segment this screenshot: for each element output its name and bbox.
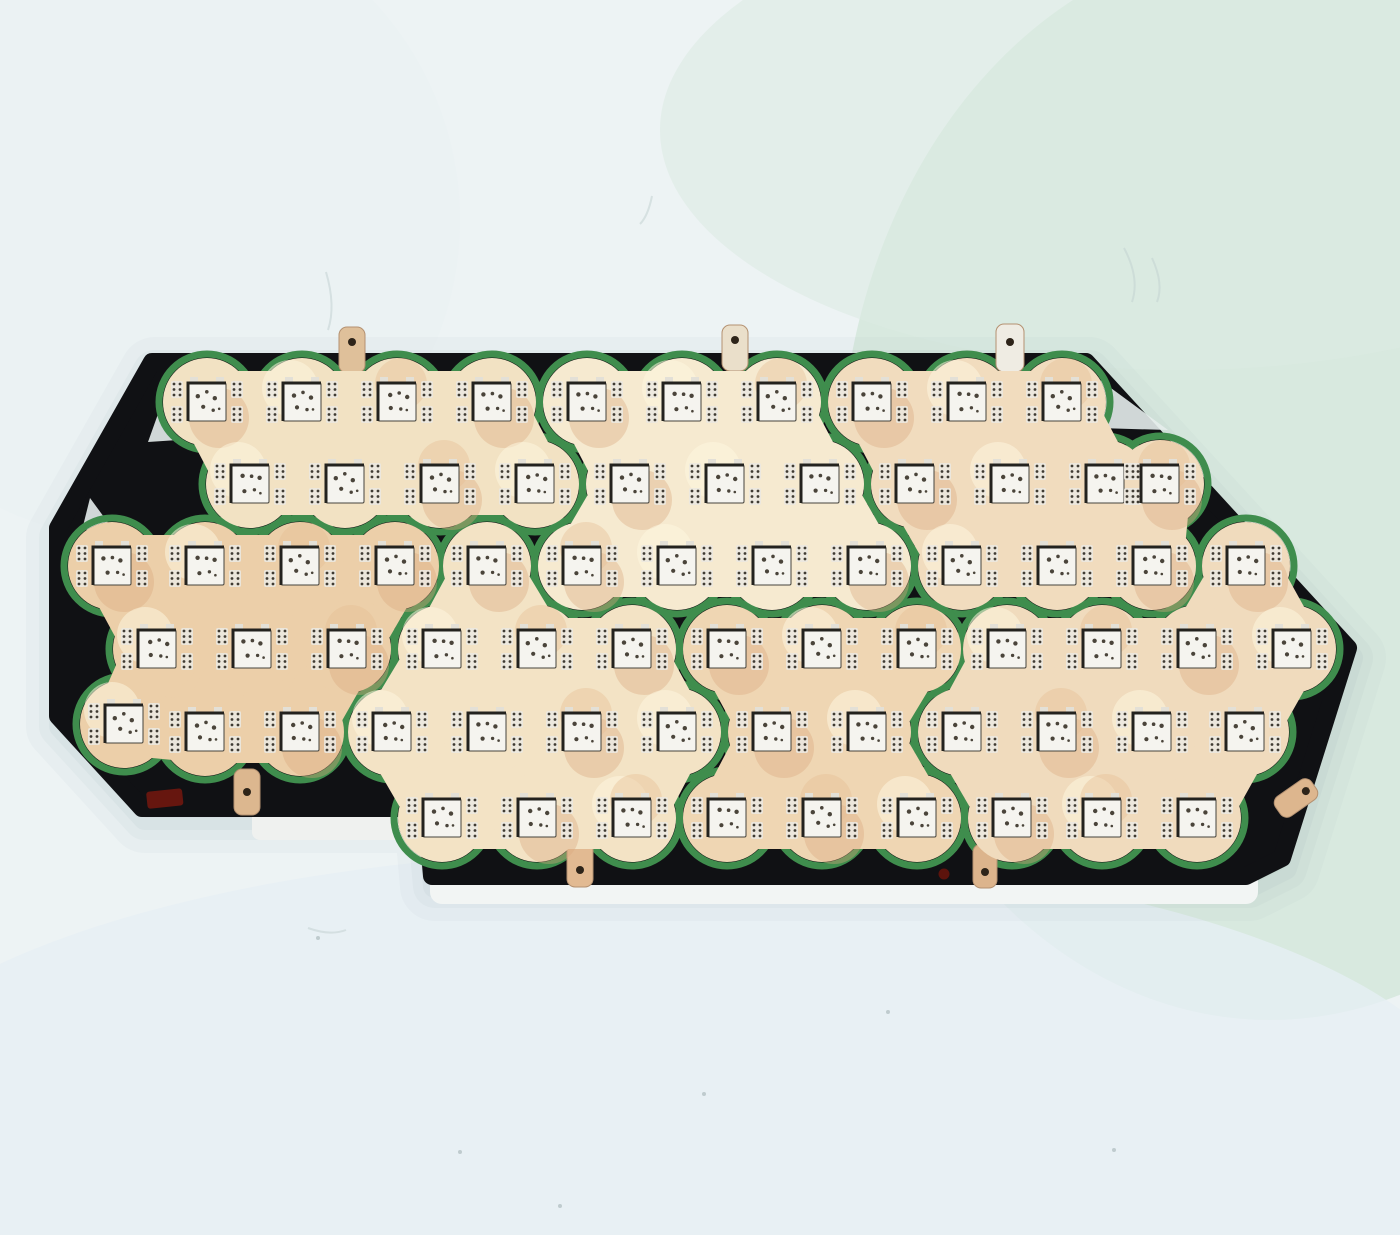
chip-weld-dot (964, 737, 967, 740)
weld-dot (177, 718, 180, 721)
weld-dot (1089, 724, 1092, 727)
weld-dot (406, 495, 409, 498)
weld-dot (993, 419, 996, 422)
weld-dot (649, 718, 652, 721)
weld-dot (332, 713, 335, 716)
weld-dot (1277, 743, 1280, 746)
weld-dot (1186, 490, 1189, 493)
weld-dot (1184, 713, 1187, 716)
chip-weld-dot (688, 738, 691, 741)
weld-dot (714, 413, 717, 416)
weld-dot (216, 476, 219, 479)
weld-dot (418, 724, 421, 727)
weld-dot (233, 413, 236, 416)
weld-dot (1068, 824, 1071, 827)
weld-dot (928, 547, 931, 550)
weld-dot (332, 749, 335, 752)
weld-dot (883, 799, 886, 802)
weld-dot (218, 641, 221, 644)
weld-dot (643, 743, 646, 746)
weld-dot (1264, 630, 1267, 633)
chip-weld-dot (445, 824, 448, 827)
weld-dot (358, 749, 361, 752)
weld-dot (949, 635, 952, 638)
weld-dot (554, 724, 557, 727)
weld-dot (949, 824, 952, 827)
chip-weld-dot (258, 641, 262, 645)
chip-weld-dot (450, 490, 453, 493)
weld-dot (364, 749, 367, 752)
weld-dot (282, 465, 285, 468)
weld-dot (1229, 630, 1232, 633)
weld-dot (278, 660, 281, 663)
weld-dot (1163, 804, 1166, 807)
weld-dot (662, 476, 665, 479)
weld-dot (1134, 804, 1137, 807)
weld-dot (408, 829, 411, 832)
chip-weld-dot (907, 640, 911, 644)
weld-dot (804, 583, 807, 586)
weld-dot (179, 413, 182, 416)
weld-dot (1163, 824, 1166, 827)
weld-dot (272, 552, 275, 555)
weld-dot (138, 577, 141, 580)
chip-body (896, 465, 934, 503)
chip-weld-dot (925, 490, 928, 493)
weld-dot (934, 749, 937, 752)
chip-weld-dot (334, 476, 338, 480)
weld-dot (949, 829, 952, 832)
weld-dot (934, 552, 937, 555)
weld-dot (237, 572, 240, 575)
weld-dot (1271, 713, 1274, 716)
weld-dot (1211, 743, 1214, 746)
weld-dot (408, 635, 411, 638)
weld-dot (798, 713, 801, 716)
weld-dot (759, 804, 762, 807)
weld-dot (408, 810, 411, 813)
weld-dot (563, 835, 566, 838)
weld-dot (749, 413, 752, 416)
weld-dot (1211, 749, 1214, 752)
weld-dot (1229, 666, 1232, 669)
weld-dot (852, 490, 855, 493)
chip-weld-dot (406, 409, 409, 412)
weld-dot (934, 547, 937, 550)
weld-dot (519, 724, 522, 727)
weld-dot (994, 577, 997, 580)
weld-dot (598, 835, 601, 838)
photo-stage (0, 0, 1400, 1235)
weld-dot (567, 495, 570, 498)
weld-dot (598, 666, 601, 669)
weld-dot (519, 718, 522, 721)
weld-dot (231, 749, 234, 752)
weld-dot (803, 383, 806, 386)
chip-weld-dot (253, 488, 256, 491)
weld-dot (602, 470, 605, 473)
weld-dot (744, 577, 747, 580)
weld-dot (274, 408, 277, 411)
weld-dot (1137, 501, 1140, 504)
weld-dot (1264, 666, 1267, 669)
weld-dot (1163, 799, 1166, 802)
chip-weld-dot (1302, 655, 1305, 658)
weld-dot (1278, 572, 1281, 575)
weld-dot (1033, 630, 1036, 633)
chip-weld-dot (591, 407, 594, 410)
chip-weld-dot (262, 656, 265, 659)
chip-weld-dot (907, 809, 911, 813)
weld-dot (794, 824, 797, 827)
chip-weld-dot (443, 490, 446, 493)
weld-dot (1033, 655, 1036, 658)
chip-weld-dot (683, 560, 687, 564)
weld-dot (798, 718, 801, 721)
weld-dot (503, 635, 506, 638)
weld-dot (709, 583, 712, 586)
weld-dot (518, 413, 521, 416)
weld-dot (939, 388, 942, 391)
weld-dot (691, 501, 694, 504)
weld-dot (804, 547, 807, 550)
chip-body (1226, 713, 1264, 751)
weld-dot (608, 583, 611, 586)
weld-dot (561, 495, 564, 498)
weld-dot (554, 547, 557, 550)
surface-speck (458, 1150, 462, 1154)
weld-dot (1077, 465, 1080, 468)
weld-dot (377, 501, 380, 504)
weld-dot (1088, 413, 1091, 416)
weld-dot (563, 630, 566, 633)
weld-dot (1169, 630, 1172, 633)
chip-weld-dot (621, 808, 625, 812)
weld-dot (753, 641, 756, 644)
chip-weld-dot (1013, 641, 1017, 645)
chip-weld-dot (734, 491, 737, 494)
weld-dot (697, 490, 700, 493)
weld-dot (691, 495, 694, 498)
weld-dot (804, 749, 807, 752)
weld-dot (1074, 660, 1077, 663)
weld-dot (619, 388, 622, 391)
chip-weld-dot (1191, 823, 1195, 827)
weld-dot (803, 408, 806, 411)
weld-dot (1184, 558, 1187, 561)
chip-weld-dot (924, 642, 928, 646)
chip-weld-dot (1010, 473, 1014, 477)
chip-body (518, 799, 556, 837)
weld-dot (171, 749, 174, 752)
weld-dot (513, 572, 516, 575)
weld-dot (424, 749, 427, 752)
weld-dot (1278, 552, 1281, 555)
weld-dot (554, 713, 557, 716)
weld-dot (501, 495, 504, 498)
chip-weld-dot (432, 639, 436, 643)
weld-dot (703, 577, 706, 580)
chip-weld-dot (640, 490, 643, 493)
balance-tab (234, 769, 260, 815)
weld-dot (278, 641, 281, 644)
chip-weld-dot (635, 655, 638, 658)
weld-dot (369, 408, 372, 411)
chip-body (663, 383, 701, 421)
chip-weld-dot (129, 731, 132, 734)
weld-dot (414, 630, 417, 633)
weld-dot (282, 490, 285, 493)
chip-body (658, 547, 696, 585)
weld-dot (468, 810, 471, 813)
weld-dot (654, 419, 657, 422)
weld-dot (1128, 804, 1131, 807)
weld-dot (326, 738, 329, 741)
chip-weld-dot (1152, 722, 1156, 726)
weld-dot (839, 558, 842, 561)
weld-dot (792, 470, 795, 473)
weld-dot (224, 635, 227, 638)
weld-dot (786, 490, 789, 493)
weld-dot (838, 388, 841, 391)
weld-dot (379, 641, 382, 644)
weld-dot (509, 630, 512, 633)
weld-dot (1192, 470, 1195, 473)
chip-weld-dot (625, 652, 629, 656)
weld-dot (332, 547, 335, 550)
chip-weld-dot (856, 722, 860, 726)
weld-dot (662, 495, 665, 498)
weld-dot (567, 490, 570, 493)
weld-dot (883, 666, 886, 669)
chip-weld-dot (814, 489, 818, 493)
weld-dot (934, 583, 937, 586)
weld-dot (1088, 408, 1091, 411)
weld-dot (749, 394, 752, 397)
weld-dot (794, 804, 797, 807)
weld-dot (883, 829, 886, 832)
chip-body (801, 465, 839, 503)
balance-tab-hole (348, 338, 356, 346)
weld-dot (1088, 388, 1091, 391)
weld-dot (604, 666, 607, 669)
weld-dot (96, 735, 99, 738)
chip-weld-dot (384, 736, 388, 740)
weld-dot (893, 552, 896, 555)
chip-weld-dot (218, 408, 221, 411)
weld-dot (1229, 641, 1232, 644)
weld-dot (96, 705, 99, 708)
chip-weld-dot (727, 639, 731, 643)
chip-weld-dot (859, 570, 863, 574)
weld-dot (90, 741, 93, 744)
weld-dot (693, 655, 696, 658)
weld-dot (889, 835, 892, 838)
chip-body (753, 547, 791, 585)
weld-dot (1036, 476, 1039, 479)
chip-weld-dot (918, 490, 921, 493)
weld-dot (703, 572, 706, 575)
weld-dot (412, 490, 415, 493)
chip-weld-dot (734, 810, 738, 814)
weld-dot (519, 743, 522, 746)
weld-dot (563, 635, 566, 638)
weld-dot (803, 413, 806, 416)
weld-dot (994, 738, 997, 741)
weld-dot (939, 413, 942, 416)
weld-dot (1029, 547, 1032, 550)
weld-dot (649, 552, 652, 555)
chip-weld-dot (298, 554, 302, 558)
weld-dot (1124, 749, 1127, 752)
weld-dot (1192, 476, 1195, 479)
weld-dot (798, 738, 801, 741)
chip-weld-dot (337, 639, 341, 643)
weld-dot (848, 641, 851, 644)
weld-dot (513, 738, 516, 741)
chip-weld-dot (827, 825, 830, 828)
weld-dot (889, 824, 892, 827)
weld-dot (1029, 552, 1032, 555)
weld-dot (319, 641, 322, 644)
weld-dot (1118, 749, 1121, 752)
weld-dot (809, 413, 812, 416)
weld-dot (326, 577, 329, 580)
weld-dot (947, 490, 950, 493)
chip-weld-dot (866, 407, 870, 411)
weld-dot (559, 388, 562, 391)
chip-weld-dot (639, 642, 643, 646)
weld-dot (898, 388, 901, 391)
weld-dot (1184, 552, 1187, 555)
weld-dot (519, 583, 522, 586)
weld-dot (999, 388, 1002, 391)
weld-dot (949, 810, 952, 813)
weld-dot (358, 724, 361, 727)
weld-dot (899, 583, 902, 586)
chip-weld-dot (542, 656, 545, 659)
weld-dot (656, 501, 659, 504)
weld-dot (838, 419, 841, 422)
weld-dot (1211, 713, 1214, 716)
chip-weld-dot (866, 722, 870, 726)
weld-dot (272, 713, 275, 716)
weld-dot (804, 552, 807, 555)
chip-weld-dot (953, 723, 957, 727)
chip-weld-dot (402, 559, 406, 563)
weld-dot (311, 501, 314, 504)
chip-weld-dot (394, 737, 397, 740)
weld-dot (947, 476, 950, 479)
weld-dot (144, 577, 147, 580)
weld-dot (466, 495, 469, 498)
weld-dot (759, 835, 762, 838)
weld-dot (604, 829, 607, 832)
chip-body (1038, 713, 1076, 751)
weld-dot (222, 465, 225, 468)
weld-dot (1068, 630, 1071, 633)
weld-dot (1212, 547, 1215, 550)
weld-dot (326, 724, 329, 727)
weld-dot (1036, 495, 1039, 498)
chip-body (611, 465, 649, 503)
weld-dot (1258, 641, 1261, 644)
weld-dot (614, 738, 617, 741)
weld-dot (1169, 835, 1172, 838)
weld-dot (757, 476, 760, 479)
weld-dot (179, 383, 182, 386)
weld-dot (703, 738, 706, 741)
weld-dot (129, 641, 132, 644)
weld-dot (788, 660, 791, 663)
weld-dot (939, 394, 942, 397)
weld-dot (554, 552, 557, 555)
weld-dot (459, 547, 462, 550)
chip-weld-dot (545, 811, 549, 815)
chip-weld-dot (351, 478, 355, 482)
weld-dot (332, 738, 335, 741)
chip-weld-dot (623, 487, 627, 491)
weld-dot (881, 490, 884, 493)
chip-weld-dot (927, 655, 930, 658)
weld-dot (414, 824, 417, 827)
weld-dot (889, 829, 892, 832)
weld-dot (848, 666, 851, 669)
weld-dot (371, 470, 374, 473)
chip-weld-dot (122, 712, 126, 716)
weld-dot (371, 476, 374, 479)
weld-dot (266, 572, 269, 575)
weld-dot (887, 501, 890, 504)
weld-dot (844, 394, 847, 397)
weld-dot (738, 738, 741, 741)
weld-dot (1169, 641, 1172, 644)
weld-dot (881, 465, 884, 468)
weld-dot (1186, 501, 1189, 504)
weld-dot (1184, 718, 1187, 721)
chip-weld-dot (1161, 740, 1164, 743)
weld-dot (423, 383, 426, 386)
weld-dot (1074, 641, 1077, 644)
chip-weld-dot (585, 570, 588, 573)
chip-weld-dot (343, 472, 347, 476)
weld-dot (231, 547, 234, 550)
weld-dot (928, 724, 931, 727)
weld-dot (949, 799, 952, 802)
weld-dot (984, 810, 987, 813)
chip-weld-dot (1195, 637, 1199, 641)
weld-dot (753, 630, 756, 633)
chip-weld-dot (159, 654, 162, 657)
weld-dot (1324, 630, 1327, 633)
weld-dot (854, 829, 857, 832)
weld-dot (459, 577, 462, 580)
weld-dot (1223, 660, 1226, 663)
weld-dot (418, 713, 421, 716)
weld-dot (753, 799, 756, 802)
weld-dot (973, 635, 976, 638)
weld-dot (839, 749, 842, 752)
weld-dot (658, 630, 661, 633)
weld-dot (179, 388, 182, 391)
weld-dot (472, 465, 475, 468)
weld-dot (848, 630, 851, 633)
chip-weld-dot (1104, 823, 1107, 826)
chip-weld-dot (385, 557, 389, 561)
weld-dot (898, 413, 901, 416)
weld-dot (744, 749, 747, 752)
weld-dot (604, 804, 607, 807)
